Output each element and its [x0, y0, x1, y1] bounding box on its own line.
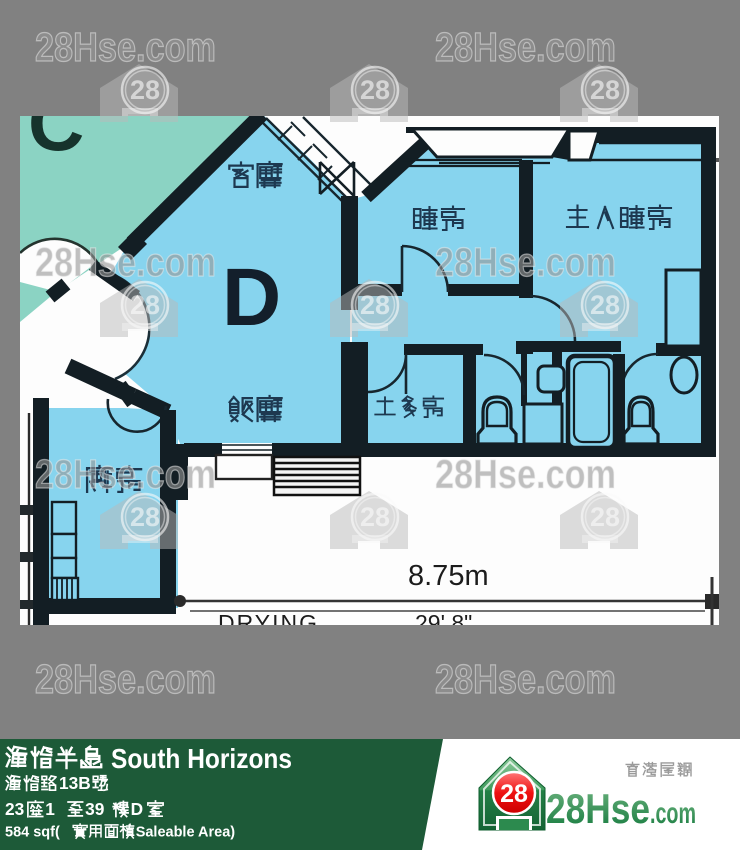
svg-text:1: 1 [45, 799, 55, 819]
svg-text:29' 8": 29' 8" [415, 610, 472, 636]
svg-text:28Hse.com: 28Hse.com [435, 24, 616, 70]
svg-text:28: 28 [590, 75, 620, 105]
svg-text:.com: .com [650, 797, 696, 830]
svg-text:28Hse: 28Hse [546, 785, 650, 832]
svg-text:13B: 13B [59, 773, 91, 793]
svg-text:28Hse.com: 28Hse.com [435, 656, 616, 702]
svg-text:28: 28 [130, 290, 160, 320]
svg-text:28: 28 [130, 502, 160, 532]
svg-text:D: D [131, 799, 143, 819]
svg-text:28Hse.com: 28Hse.com [35, 239, 216, 285]
svg-text:Saleable Area): Saleable Area) [136, 825, 236, 841]
svg-text:28Hse.com: 28Hse.com [35, 656, 216, 702]
svg-text:28Hse.com: 28Hse.com [435, 239, 616, 285]
svg-text:28: 28 [500, 780, 528, 808]
svg-text:584 sqf(: 584 sqf( [5, 825, 60, 841]
svg-text:28Hse.com: 28Hse.com [435, 451, 616, 497]
svg-text:28: 28 [590, 502, 620, 532]
svg-text:28: 28 [130, 75, 160, 105]
svg-text:23: 23 [5, 799, 24, 819]
svg-text:28: 28 [360, 75, 390, 105]
svg-text:28Hse.com: 28Hse.com [35, 24, 216, 70]
svg-text:28Hse.com: 28Hse.com [35, 451, 216, 497]
svg-text:C: C [28, 79, 84, 167]
svg-text:DRYING: DRYING [218, 610, 319, 636]
svg-text:28: 28 [360, 290, 390, 320]
svg-text:D: D [222, 252, 281, 343]
svg-text:South Horizons: South Horizons [111, 743, 292, 774]
svg-text:8.75m: 8.75m [408, 560, 489, 592]
svg-text:28: 28 [360, 502, 390, 532]
svg-text:39: 39 [85, 799, 104, 819]
svg-text:28: 28 [590, 290, 620, 320]
